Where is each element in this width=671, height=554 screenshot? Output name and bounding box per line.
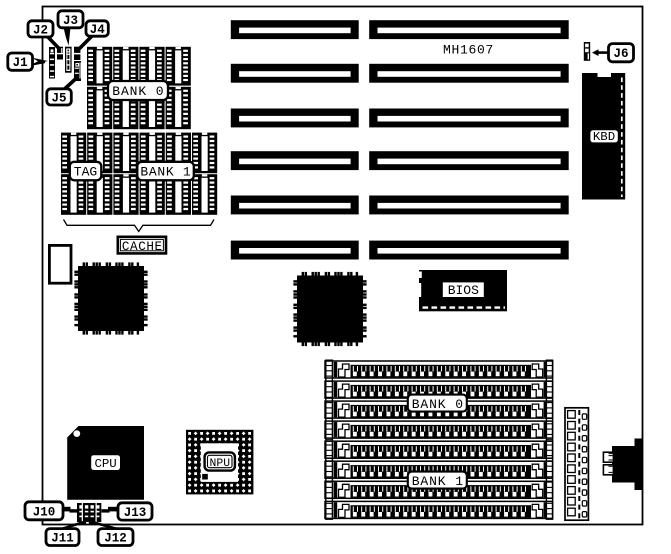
svg-text:J3: J3: [63, 14, 78, 28]
svg-text:TAG: TAG: [74, 165, 97, 180]
svg-text:J6: J6: [613, 47, 628, 61]
svg-text:BANK 0: BANK 0: [112, 84, 164, 99]
svg-text:BANK 0: BANK 0: [412, 397, 464, 412]
svg-text:J4: J4: [90, 23, 106, 37]
svg-text:J12: J12: [104, 532, 127, 546]
svg-text:J13: J13: [124, 506, 147, 520]
svg-text:J2: J2: [33, 23, 48, 37]
svg-text:J10: J10: [33, 505, 56, 519]
svg-text:MH1607: MH1607: [443, 42, 494, 57]
svg-text:KBD: KBD: [593, 130, 615, 144]
svg-text:BIOS: BIOS: [448, 283, 479, 298]
svg-text:BANK 1: BANK 1: [412, 474, 464, 489]
svg-text:NPU: NPU: [210, 458, 231, 470]
svg-text:BANK 1: BANK 1: [140, 165, 191, 180]
svg-text:J5: J5: [51, 91, 66, 105]
svg-text:CPU: CPU: [94, 457, 116, 471]
svg-text:CACHE: CACHE: [122, 240, 163, 254]
svg-text:J11: J11: [51, 532, 74, 546]
svg-text:J1: J1: [13, 56, 28, 70]
